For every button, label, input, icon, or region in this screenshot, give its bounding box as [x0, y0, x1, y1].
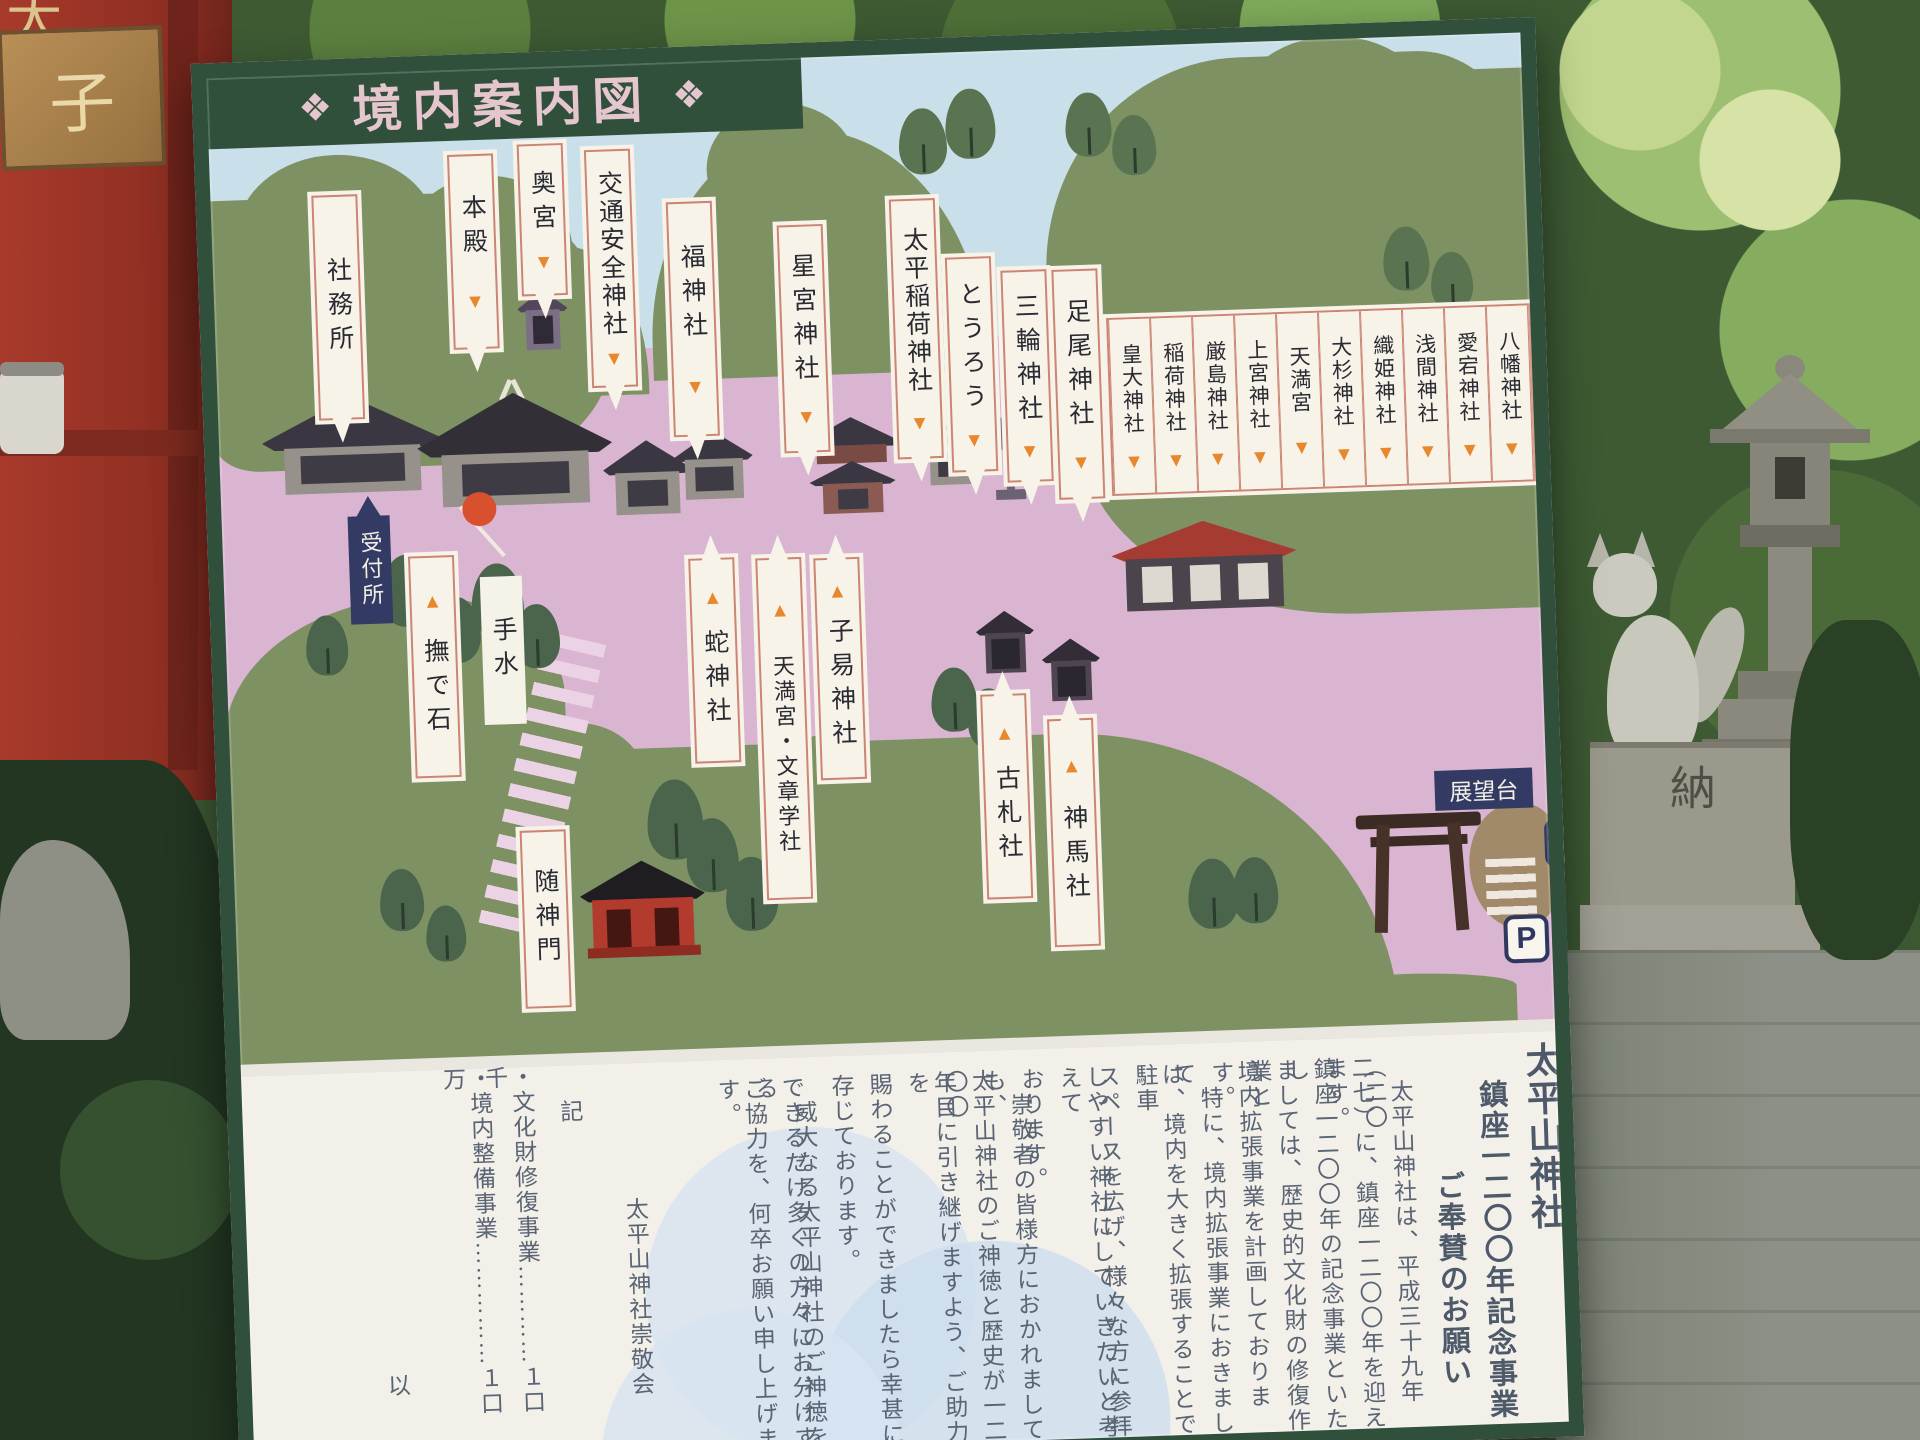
fox-head — [1593, 553, 1657, 617]
notice-column: 記 — [555, 1099, 582, 1125]
leaf-cluster — [60, 1080, 240, 1260]
lantern-window — [1775, 457, 1805, 499]
notice-column: 以 — [382, 1373, 409, 1399]
pedestal-char: 納 — [1656, 764, 1722, 810]
notice-column: 鎮座一二〇〇年記念事業 — [1473, 1079, 1518, 1421]
notice-column: 太平山神社 — [1519, 1041, 1567, 1232]
lantern-collar — [1740, 525, 1840, 547]
foliage-shadow — [1790, 620, 1920, 960]
white-lantern-icon — [0, 368, 64, 454]
notice-column: 賜わることができましたら幸甚に — [864, 1072, 904, 1440]
notice-text-layer: 太平山神社鎮座一二〇〇年記念事業ご奉賛のお願い 太平山神社は、平成三十九年（二〇… — [191, 17, 1585, 1440]
fox-statue — [1585, 545, 1745, 775]
photo-scene: 太 子 納 — [0, 0, 1920, 1440]
white-lantern-cap — [0, 362, 64, 376]
lantern-pillar — [1768, 547, 1812, 675]
lantern-eaves — [1710, 429, 1870, 443]
signboard: ❖ 境内案内図 ❖ 受付所 展望台 P P — [191, 17, 1585, 1440]
notice-column: 太平山神社崇敬会 — [620, 1197, 653, 1398]
wooden-plaque: 子 — [0, 25, 166, 171]
lantern-roof — [1718, 373, 1862, 433]
notice-column: 存じております。 — [826, 1073, 859, 1274]
stone-wall — [1556, 950, 1920, 1440]
plaque-char: 子 — [47, 49, 116, 147]
notice-column: ご奉賛のお願い — [1430, 1170, 1471, 1388]
